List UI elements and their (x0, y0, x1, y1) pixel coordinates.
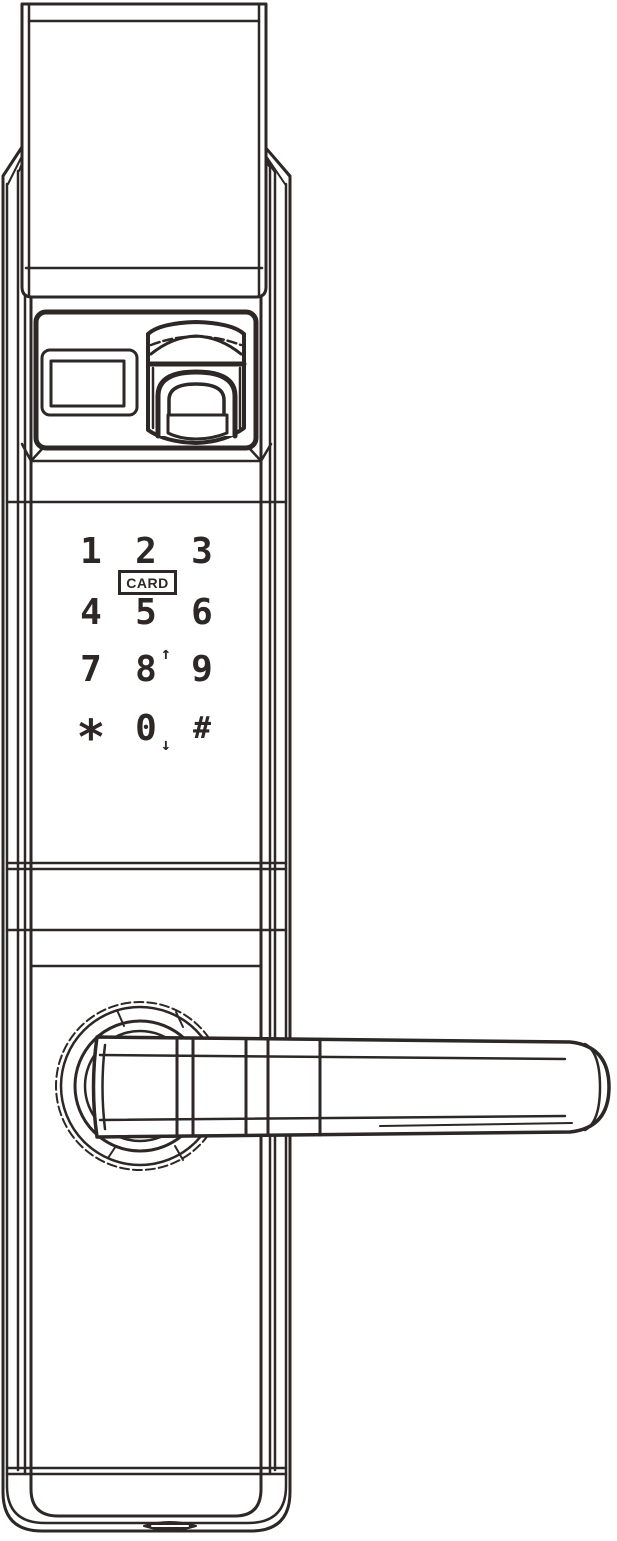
top-cap-outline (22, 4, 266, 297)
key-8-label: 8 (135, 652, 157, 688)
key-hash: # (180, 708, 224, 750)
display-window-screen (51, 361, 124, 406)
key-9: 9 (180, 649, 224, 691)
key-4: 4 (69, 592, 113, 634)
down-arrow-icon: ↓ (161, 737, 171, 754)
key-star: * (69, 708, 113, 750)
key-2-label: 2 (135, 534, 157, 570)
key-8: 8 ↑ (124, 649, 168, 691)
key-3: 3 (180, 531, 224, 573)
up-arrow-icon: ↑ (161, 646, 171, 663)
key-1: 1 (69, 531, 113, 573)
key-1-label: 1 (80, 534, 102, 570)
key-3-label: 3 (191, 534, 213, 570)
key-6: 6 (180, 592, 224, 634)
top-cap (22, 4, 266, 297)
key-2: 2 (124, 531, 168, 573)
key-5-label: 5 (135, 595, 157, 631)
key-7: 7 (69, 649, 113, 691)
fingerprint-sensor-window (168, 415, 227, 439)
door-lock-diagram: 1 2 3 CARD 4 5 6 7 8 ↑ 9 * 0 ↓ # (0, 0, 617, 1541)
key-0-label: 0 (135, 711, 157, 747)
handle-lever (94, 1037, 610, 1137)
card-label-text: CARD (126, 575, 168, 591)
display-window (42, 350, 137, 415)
fingerprint-cover-arc (151, 336, 241, 354)
key-0: 0 ↓ (124, 708, 168, 750)
fingerprint-reader (148, 322, 244, 443)
key-4-label: 4 (80, 595, 102, 631)
key-star-label: * (77, 714, 106, 762)
key-9-label: 9 (191, 652, 213, 688)
sensor-panel (36, 312, 256, 448)
key-7-label: 7 (80, 652, 102, 688)
key-hash-label: # (193, 714, 211, 744)
key-5: 5 (124, 592, 168, 634)
lock-line-drawing (0, 0, 617, 1541)
key-6-label: 6 (191, 595, 213, 631)
lever-outline (94, 1037, 610, 1137)
bottom-port (144, 1522, 196, 1530)
